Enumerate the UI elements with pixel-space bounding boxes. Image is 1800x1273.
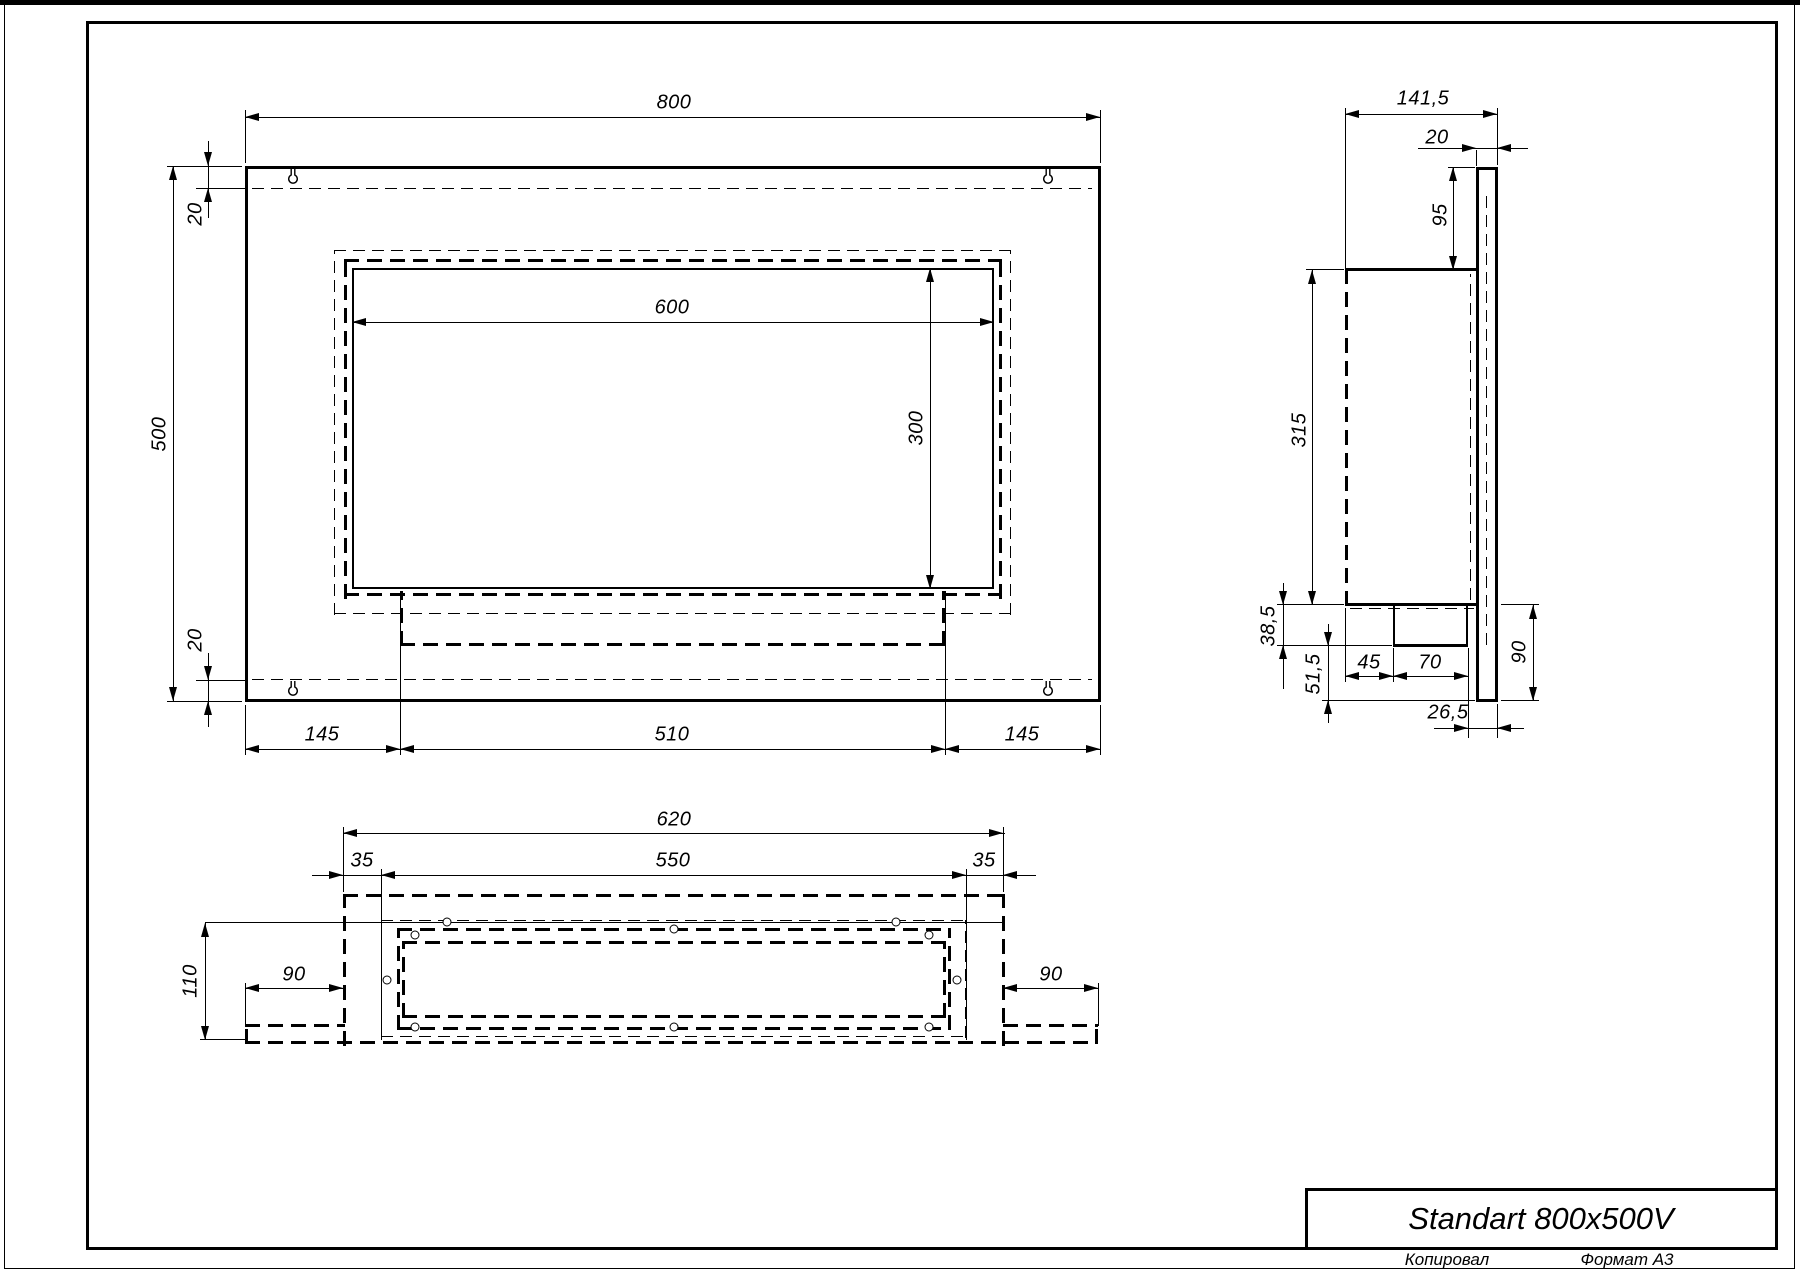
dim-label: 90: [1039, 964, 1062, 987]
body-front-edge: [343, 894, 1005, 897]
hidden-body-wall: [1470, 274, 1471, 600]
tray-wall: [1393, 606, 1395, 646]
dim-line: [205, 923, 206, 1040]
arrowhead: [169, 166, 177, 180]
dim-label: 110: [180, 964, 203, 997]
ext-line: [381, 869, 382, 1040]
dim-line: [245, 749, 1101, 750]
ext-line: [1277, 604, 1344, 605]
ext-line: [1345, 608, 1346, 682]
drawing-sheet: 800 500 20 20 600 300: [0, 0, 1800, 1273]
dim-label: 800: [657, 92, 692, 115]
hidden-tray: [400, 643, 945, 646]
arrowhead: [1086, 745, 1100, 753]
arrowhead: [201, 1026, 209, 1040]
plate-rear-edge: [245, 1041, 1098, 1044]
dim-label: 20: [185, 628, 208, 651]
ext-line: [1345, 108, 1346, 268]
arrowhead: [1084, 984, 1098, 992]
dim-label: 500: [149, 417, 172, 452]
ext-line: [400, 591, 401, 755]
arrowhead: [381, 871, 395, 879]
dim-label: 45: [1357, 652, 1380, 675]
arrowhead: [1449, 256, 1457, 270]
arrowhead: [1454, 724, 1468, 732]
arrowhead: [945, 745, 959, 753]
dim-label: 20: [185, 202, 208, 225]
dim-label: 300: [906, 411, 929, 446]
plate-wing-edge: [1003, 1024, 1098, 1027]
dim-label: 70: [1418, 652, 1441, 675]
arrowhead: [1462, 144, 1476, 152]
keyhole-slot-icon: [1041, 680, 1055, 700]
hidden-tray: [402, 941, 946, 944]
dim-line: [173, 166, 174, 702]
plate-end-cap: [245, 1024, 248, 1044]
arrowhead: [1086, 113, 1100, 121]
hidden-frame-outer: [381, 920, 967, 921]
glass-edge-line: [205, 922, 1005, 923]
dim-label: 600: [655, 297, 690, 320]
hidden-frame: [344, 259, 347, 599]
arrowhead: [169, 687, 177, 701]
screw-hole: [892, 918, 901, 927]
arrowhead: [400, 745, 414, 753]
arrowhead: [343, 829, 357, 837]
dim-label: 315: [1289, 413, 1312, 448]
arrowhead: [931, 745, 945, 753]
arrowhead: [204, 666, 212, 680]
arrowhead: [1308, 270, 1316, 284]
screw-hole: [443, 918, 452, 927]
body-top-edge: [1345, 268, 1477, 271]
screw-hole: [411, 931, 420, 940]
footer-copied-label: Копировал: [1405, 1250, 1490, 1270]
arrowhead: [1279, 591, 1287, 605]
dim-line: [312, 875, 1036, 876]
hidden-tray: [402, 1015, 946, 1018]
keyhole-slot-icon: [286, 168, 300, 188]
body-bottom-edge: [1345, 603, 1477, 606]
screw-hole: [953, 976, 962, 985]
plate-wing-edge: [245, 1024, 345, 1027]
ext-line: [966, 869, 967, 1040]
dim-line: [930, 268, 931, 589]
arrowhead: [329, 871, 343, 879]
dim-label: 141,5: [1397, 88, 1450, 111]
ext-line: [1476, 150, 1477, 166]
hidden-frame-outer: [334, 250, 1012, 251]
arrowhead: [1379, 672, 1393, 680]
dim-label: 550: [656, 850, 691, 873]
hidden-frame: [948, 928, 951, 1030]
hidden-flange: [1350, 608, 1474, 609]
arrowhead: [245, 984, 259, 992]
arrowhead: [386, 745, 400, 753]
hidden-frame-outer: [1010, 250, 1011, 615]
arrowhead: [926, 575, 934, 589]
arrowhead: [204, 701, 212, 715]
dim-line: [208, 653, 209, 727]
dim-label: 38,5: [1258, 606, 1281, 647]
ext-line: [1497, 704, 1498, 738]
screw-hole: [670, 925, 679, 934]
hidden-slot-line: [1486, 190, 1487, 645]
dim-label: 620: [657, 809, 692, 832]
arrowhead: [204, 152, 212, 166]
hidden-tray: [402, 941, 405, 1018]
dim-line: [1345, 114, 1498, 115]
arrowhead: [1003, 984, 1017, 992]
dim-line: [352, 322, 994, 323]
arrowhead: [1345, 110, 1359, 118]
arrowhead: [926, 268, 934, 282]
arrowhead: [952, 871, 966, 879]
dim-label: 35: [350, 850, 373, 873]
hidden-frame-outer: [381, 1036, 967, 1037]
ext-line: [167, 166, 242, 167]
tray-wall: [1466, 606, 1468, 646]
arrowhead: [989, 829, 1003, 837]
arrowhead: [1003, 871, 1017, 879]
dim-line: [245, 117, 1101, 118]
screw-hole: [670, 1023, 679, 1032]
arrowhead: [1324, 632, 1332, 646]
arrowhead: [1449, 167, 1457, 181]
dim-label: 145: [1005, 724, 1040, 747]
keyhole-slot-icon: [286, 680, 300, 700]
arrowhead: [201, 923, 209, 937]
dim-label: 145: [305, 724, 340, 747]
ext-line: [1277, 645, 1392, 646]
screw-hole: [383, 976, 392, 985]
arrowhead: [1393, 672, 1407, 680]
arrowhead: [1308, 591, 1316, 605]
screw-hole: [925, 931, 934, 940]
ext-line: [1497, 108, 1498, 165]
dim-label: 90: [282, 964, 305, 987]
hidden-frame: [397, 928, 400, 1030]
dim-label: 510: [655, 724, 690, 747]
ext-line: [945, 591, 946, 755]
dim-line: [1312, 270, 1313, 605]
hidden-frame-outer: [334, 613, 1012, 614]
arrowhead: [1529, 605, 1537, 619]
dim-line: [1453, 167, 1454, 270]
dim-label: 95: [1430, 203, 1453, 226]
hidden-frame-outer: [334, 250, 335, 615]
arrowhead: [204, 188, 212, 202]
hidden-top-fold-line: [252, 188, 1092, 189]
dim-label: 26,5: [1428, 702, 1469, 725]
hidden-tray: [943, 941, 946, 1018]
hidden-frame: [999, 259, 1002, 599]
arrowhead: [980, 318, 994, 326]
ext-line: [1003, 827, 1004, 892]
arrowhead: [1497, 144, 1511, 152]
arrowhead: [1497, 724, 1511, 732]
arrowhead: [245, 745, 259, 753]
arrowhead: [1454, 672, 1468, 680]
dim-line: [343, 833, 1005, 834]
arrowhead: [352, 318, 366, 326]
plate-end-cap: [1095, 1024, 1098, 1044]
drawing-title: Standart 800x500V: [1408, 1201, 1673, 1237]
ext-line: [1098, 983, 1099, 1026]
hidden-frame: [344, 593, 1002, 596]
arrowhead: [245, 113, 259, 121]
keyhole-slot-icon: [1041, 168, 1055, 188]
dim-label: 51,5: [1303, 654, 1326, 695]
dim-label: 20: [1425, 127, 1448, 150]
arrowhead: [1324, 700, 1332, 714]
ext-line: [1468, 648, 1469, 738]
dim-label: 35: [972, 850, 995, 873]
hidden-frame: [344, 259, 1002, 262]
screw-hole: [411, 1023, 420, 1032]
screw-hole: [925, 1023, 934, 1032]
hidden-bottom-fold-line: [252, 679, 1092, 680]
ext-line: [196, 680, 248, 681]
arrowhead: [1483, 110, 1497, 118]
dim-label: 90: [1509, 640, 1532, 663]
arrowhead: [1279, 645, 1287, 659]
ext-line: [1100, 705, 1101, 755]
body-front-edge: [1345, 268, 1348, 606]
tray-bottom: [1393, 644, 1468, 647]
footer-format-label: Формат А3: [1580, 1250, 1673, 1270]
rear-plate-outline: [1476, 167, 1498, 702]
arrowhead: [329, 984, 343, 992]
arrowhead: [1529, 687, 1537, 701]
